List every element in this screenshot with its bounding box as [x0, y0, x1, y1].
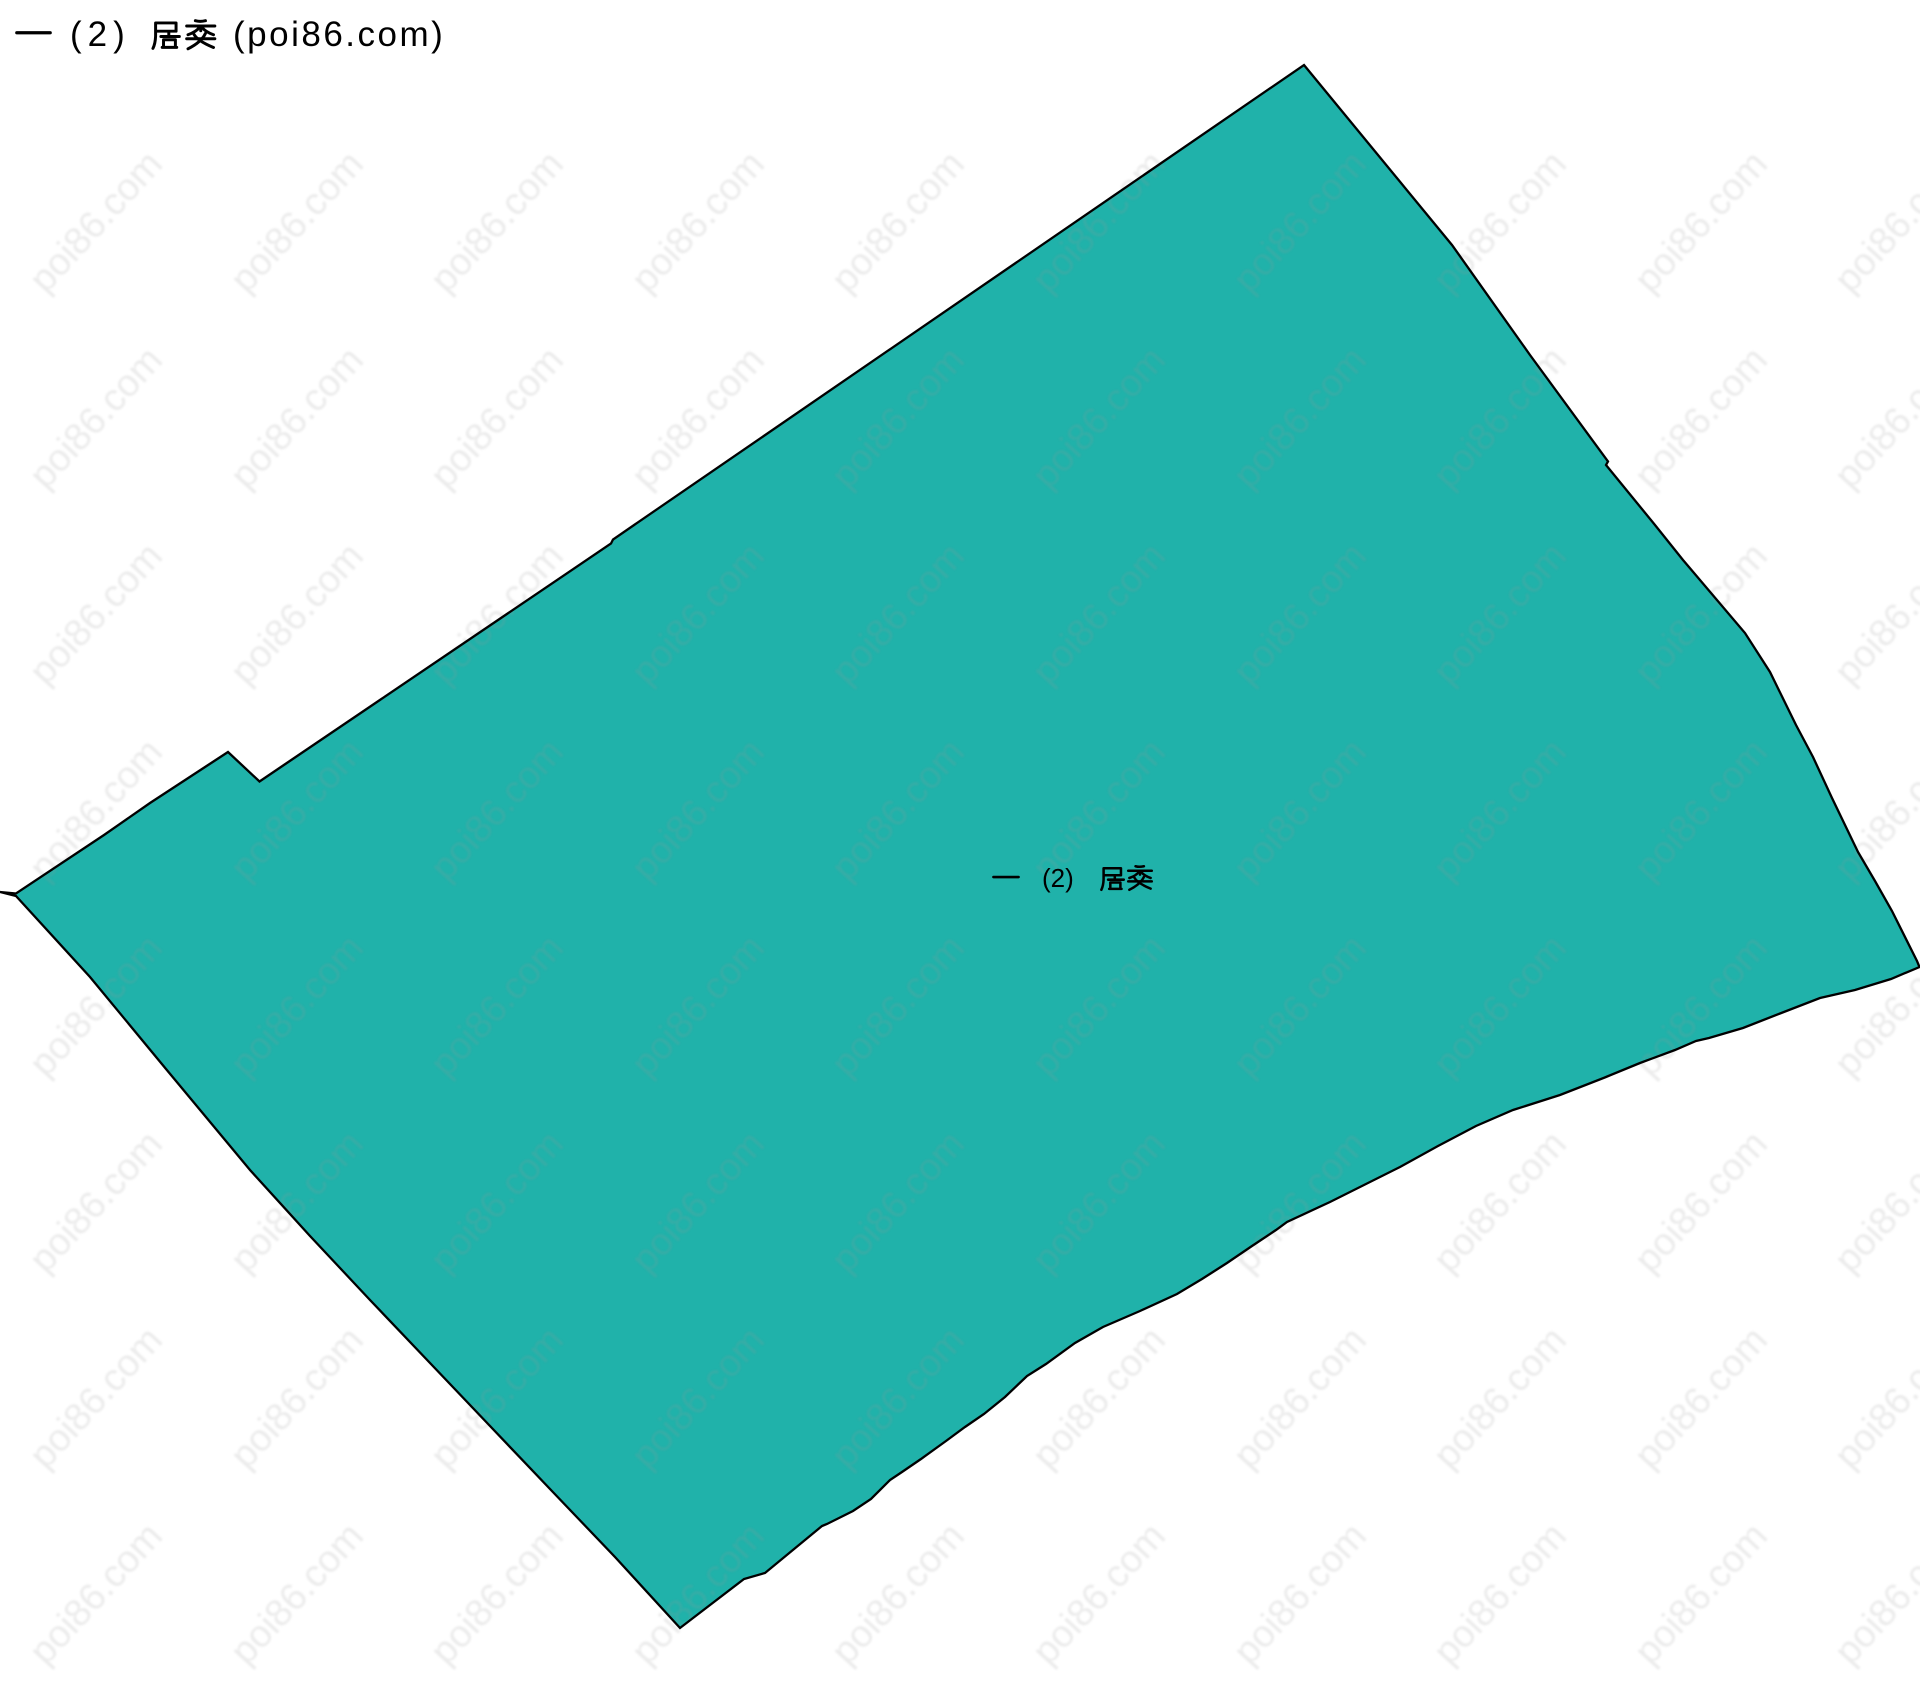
svg-text:(2): (2)	[1042, 863, 1074, 893]
svg-text:(poi86.com): (poi86.com)	[233, 15, 445, 54]
svg-text:(2): (2)	[70, 15, 131, 54]
